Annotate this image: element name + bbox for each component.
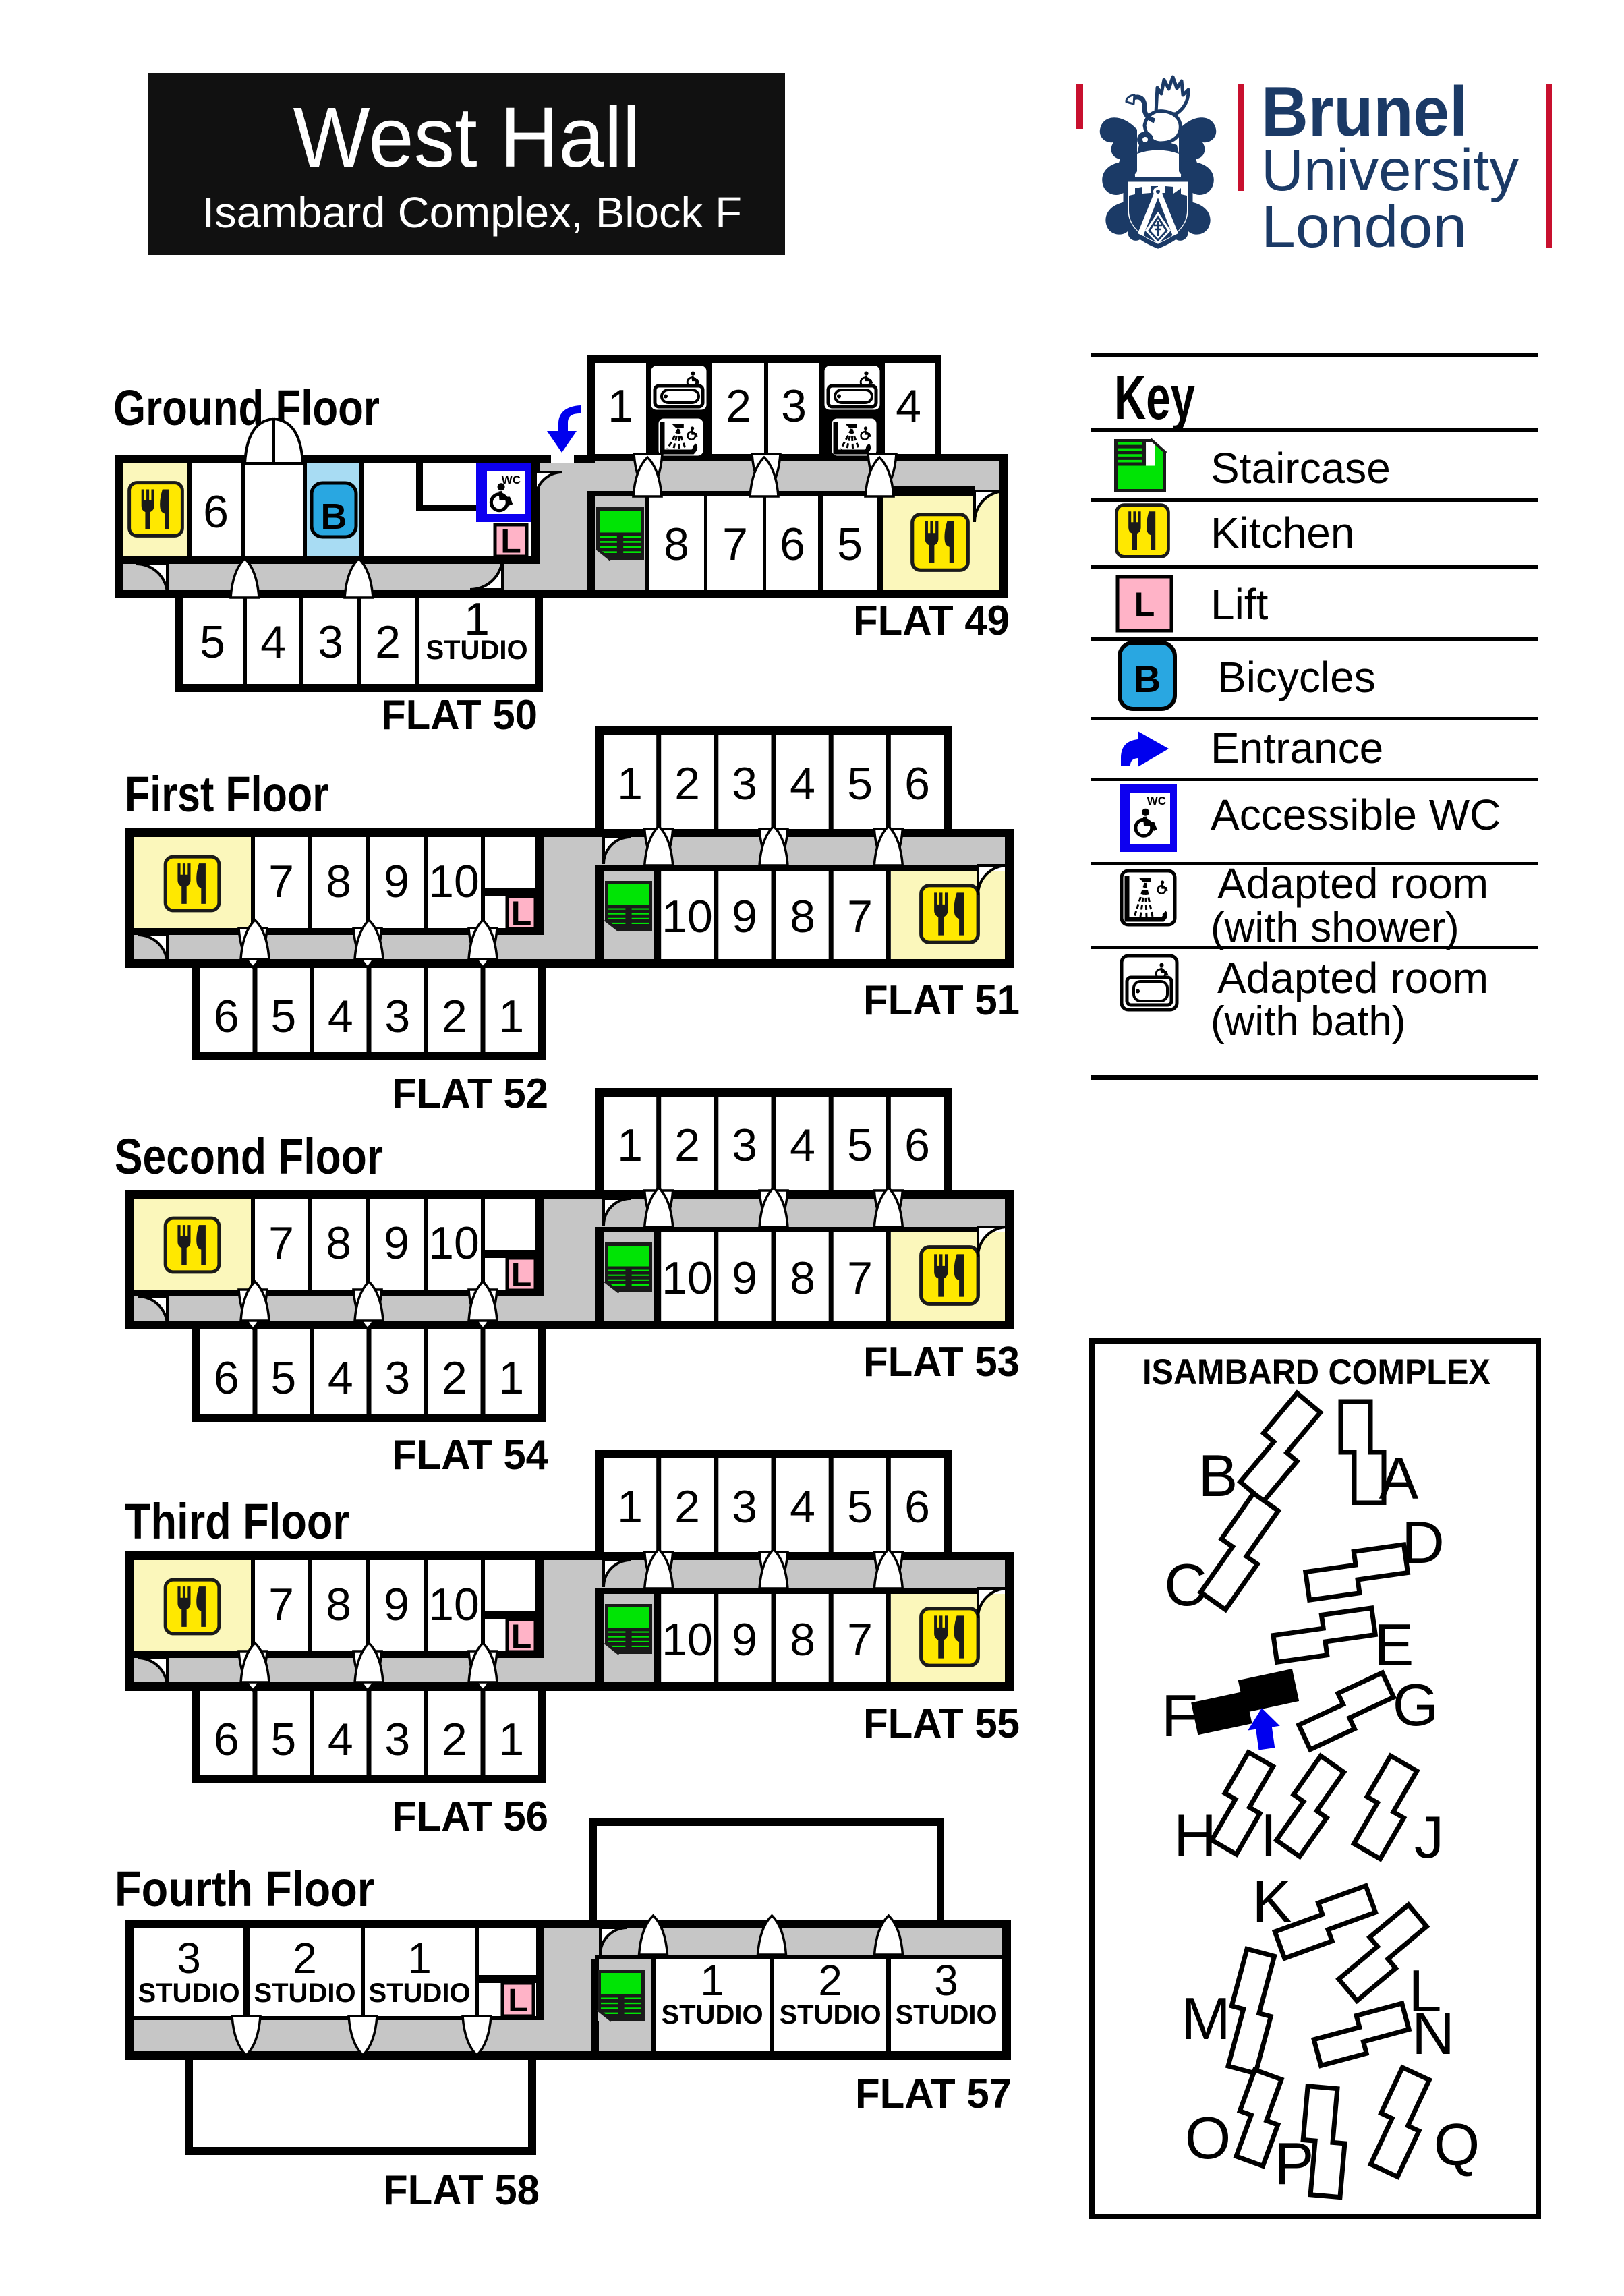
svg-text:5: 5 bbox=[200, 616, 225, 668]
svg-text:K: K bbox=[1252, 1868, 1292, 1934]
svg-text:I: I bbox=[1260, 1802, 1277, 1868]
svg-text:London: London bbox=[1261, 194, 1467, 260]
svg-text:STUDIO: STUDIO bbox=[138, 1978, 239, 2008]
svg-text:2: 2 bbox=[818, 1956, 842, 2005]
svg-text:9: 9 bbox=[384, 1217, 409, 1269]
svg-text:FLAT 57: FLAT 57 bbox=[855, 2071, 1012, 2117]
svg-text:FLAT 50: FLAT 50 bbox=[381, 692, 538, 739]
svg-text:4: 4 bbox=[790, 758, 815, 809]
svg-text:2: 2 bbox=[375, 616, 401, 668]
svg-text:10: 10 bbox=[428, 856, 480, 907]
svg-text:Bicycles: Bicycles bbox=[1217, 653, 1376, 701]
svg-text:D: D bbox=[1401, 1509, 1445, 1576]
svg-text:3: 3 bbox=[177, 1934, 201, 1982]
svg-text:4: 4 bbox=[790, 1120, 815, 1171]
svg-text:7: 7 bbox=[268, 856, 294, 907]
svg-text:7: 7 bbox=[847, 891, 873, 942]
svg-text:2: 2 bbox=[674, 758, 700, 809]
svg-text:7: 7 bbox=[268, 1217, 294, 1269]
svg-text:3: 3 bbox=[732, 758, 757, 809]
svg-text:C: C bbox=[1164, 1551, 1207, 1618]
svg-text:FLAT 56: FLAT 56 bbox=[392, 1793, 548, 1840]
svg-text:L: L bbox=[511, 1617, 532, 1655]
svg-text:10: 10 bbox=[428, 1579, 480, 1630]
svg-text:B: B bbox=[321, 496, 347, 537]
svg-text:G: G bbox=[1393, 1671, 1439, 1738]
svg-text:FLAT 53: FLAT 53 bbox=[863, 1339, 1020, 1385]
svg-text:5: 5 bbox=[270, 1352, 296, 1404]
svg-text:3: 3 bbox=[781, 380, 807, 432]
svg-text:STUDIO: STUDIO bbox=[368, 1978, 470, 2008]
svg-text:2: 2 bbox=[293, 1934, 317, 1982]
svg-text:Kitchen: Kitchen bbox=[1211, 509, 1354, 557]
svg-text:Ground Floor: Ground Floor bbox=[113, 380, 380, 436]
svg-text:4: 4 bbox=[790, 1481, 815, 1532]
svg-text:6: 6 bbox=[214, 1352, 239, 1404]
svg-text:J: J bbox=[1414, 1804, 1444, 1870]
svg-text:University: University bbox=[1261, 138, 1519, 203]
svg-text:Adapted room: Adapted room bbox=[1217, 954, 1488, 1002]
svg-text:1: 1 bbox=[617, 1481, 643, 1532]
svg-text:8: 8 bbox=[326, 856, 351, 907]
svg-text:8: 8 bbox=[326, 1217, 351, 1269]
svg-text:L: L bbox=[1134, 585, 1155, 623]
svg-text:N: N bbox=[1412, 2000, 1455, 2067]
svg-text:8: 8 bbox=[790, 1253, 815, 1304]
svg-text:FLAT 52: FLAT 52 bbox=[392, 1070, 548, 1117]
svg-text:3: 3 bbox=[732, 1120, 757, 1171]
svg-text:(with shower): (with shower) bbox=[1211, 905, 1459, 951]
svg-text:Third Floor: Third Floor bbox=[125, 1493, 349, 1549]
svg-text:L: L bbox=[511, 894, 532, 932]
svg-text:1: 1 bbox=[608, 380, 633, 432]
svg-text:1: 1 bbox=[700, 1956, 724, 2005]
svg-text:9: 9 bbox=[732, 891, 757, 942]
svg-text:O: O bbox=[1185, 2104, 1231, 2171]
svg-text:5: 5 bbox=[847, 1120, 873, 1171]
svg-text:2: 2 bbox=[674, 1120, 700, 1171]
svg-text:5: 5 bbox=[847, 758, 873, 809]
svg-text:Accessible WC: Accessible WC bbox=[1211, 791, 1501, 839]
svg-text:Key: Key bbox=[1114, 364, 1195, 432]
svg-text:L: L bbox=[511, 1256, 532, 1294]
svg-text:6: 6 bbox=[904, 1120, 930, 1171]
svg-text:9: 9 bbox=[384, 856, 409, 907]
svg-text:FLAT 51: FLAT 51 bbox=[863, 977, 1020, 1024]
svg-text:2: 2 bbox=[442, 1352, 467, 1404]
svg-text:STUDIO: STUDIO bbox=[895, 2000, 997, 2030]
svg-text:6: 6 bbox=[214, 991, 239, 1042]
svg-text:8: 8 bbox=[664, 519, 689, 570]
svg-text:FLAT 58: FLAT 58 bbox=[383, 2167, 540, 2214]
svg-text:ISAMBARD COMPLEX: ISAMBARD COMPLEX bbox=[1142, 1352, 1490, 1392]
svg-text:1: 1 bbox=[407, 1934, 432, 1982]
svg-text:8: 8 bbox=[790, 1614, 815, 1665]
svg-text:10: 10 bbox=[662, 1253, 713, 1304]
svg-text:5: 5 bbox=[837, 519, 863, 570]
svg-text:Isambard Complex, Block F: Isambard Complex, Block F bbox=[202, 188, 742, 237]
svg-text:M: M bbox=[1181, 1985, 1230, 2052]
svg-text:9: 9 bbox=[732, 1614, 757, 1665]
svg-text:6: 6 bbox=[904, 758, 930, 809]
svg-text:8: 8 bbox=[326, 1579, 351, 1630]
svg-text:P: P bbox=[1275, 2130, 1314, 2197]
svg-text:7: 7 bbox=[268, 1579, 294, 1630]
svg-text:B: B bbox=[1134, 658, 1161, 700]
svg-text:10: 10 bbox=[662, 1614, 713, 1665]
svg-text:3: 3 bbox=[732, 1481, 757, 1532]
svg-text:2: 2 bbox=[726, 380, 751, 432]
svg-text:7: 7 bbox=[847, 1253, 873, 1304]
svg-text:3: 3 bbox=[384, 1714, 410, 1765]
svg-text:STUDIO: STUDIO bbox=[426, 635, 527, 665]
svg-text:3: 3 bbox=[384, 991, 410, 1042]
svg-text:B: B bbox=[1198, 1442, 1238, 1509]
svg-text:2: 2 bbox=[442, 991, 467, 1042]
svg-text:L: L bbox=[500, 523, 521, 561]
svg-text:4: 4 bbox=[328, 1352, 353, 1404]
svg-text:4: 4 bbox=[328, 1714, 353, 1765]
svg-text:Fourth Floor: Fourth Floor bbox=[115, 1861, 374, 1917]
svg-text:West Hall: West Hall bbox=[293, 90, 641, 185]
svg-text:1: 1 bbox=[498, 991, 524, 1042]
svg-text:2: 2 bbox=[674, 1481, 700, 1532]
svg-text:Q: Q bbox=[1434, 2111, 1480, 2178]
svg-text:E: E bbox=[1374, 1611, 1414, 1678]
svg-text:(with bath): (with bath) bbox=[1211, 998, 1405, 1045]
svg-text:Lift: Lift bbox=[1211, 580, 1269, 629]
svg-text:10: 10 bbox=[662, 891, 713, 942]
svg-text:Second Floor: Second Floor bbox=[115, 1128, 383, 1184]
svg-text:Staircase: Staircase bbox=[1211, 444, 1391, 492]
svg-text:Adapted room: Adapted room bbox=[1217, 859, 1488, 908]
svg-text:1: 1 bbox=[617, 1120, 643, 1171]
svg-text:STUDIO: STUDIO bbox=[254, 1978, 355, 2008]
svg-text:4: 4 bbox=[896, 380, 921, 432]
svg-text:H: H bbox=[1173, 1802, 1217, 1868]
svg-text:7: 7 bbox=[722, 519, 748, 570]
svg-text:7: 7 bbox=[847, 1614, 873, 1665]
svg-text:6: 6 bbox=[203, 486, 229, 538]
svg-text:9: 9 bbox=[732, 1253, 757, 1304]
svg-text:5: 5 bbox=[270, 991, 296, 1042]
svg-text:4: 4 bbox=[260, 616, 286, 668]
svg-text:3: 3 bbox=[934, 1956, 958, 2005]
svg-text:8: 8 bbox=[790, 891, 815, 942]
svg-text:10: 10 bbox=[428, 1217, 480, 1269]
svg-text:1: 1 bbox=[498, 1714, 524, 1765]
svg-text:WC: WC bbox=[1147, 795, 1166, 807]
svg-text:F: F bbox=[1161, 1682, 1198, 1749]
svg-text:2: 2 bbox=[442, 1714, 467, 1765]
svg-text:First Floor: First Floor bbox=[125, 766, 328, 822]
svg-text:9: 9 bbox=[384, 1579, 409, 1630]
svg-text:STUDIO: STUDIO bbox=[661, 2000, 763, 2030]
svg-text:Entrance: Entrance bbox=[1211, 724, 1383, 772]
svg-text:A: A bbox=[1379, 1445, 1419, 1512]
svg-text:FLAT 49: FLAT 49 bbox=[853, 598, 1010, 644]
svg-text:STUDIO: STUDIO bbox=[779, 2000, 881, 2030]
svg-text:FLAT 55: FLAT 55 bbox=[863, 1700, 1020, 1747]
svg-text:WC: WC bbox=[502, 473, 521, 486]
svg-text:1: 1 bbox=[498, 1352, 524, 1404]
svg-text:1: 1 bbox=[617, 758, 643, 809]
svg-text:5: 5 bbox=[270, 1714, 296, 1765]
svg-text:FLAT 54: FLAT 54 bbox=[392, 1432, 548, 1479]
svg-text:6: 6 bbox=[780, 519, 805, 570]
svg-text:L: L bbox=[508, 1983, 527, 2019]
svg-text:6: 6 bbox=[904, 1481, 930, 1532]
svg-text:3: 3 bbox=[384, 1352, 410, 1404]
svg-text:3: 3 bbox=[318, 616, 343, 668]
svg-text:4: 4 bbox=[328, 991, 353, 1042]
svg-text:5: 5 bbox=[847, 1481, 873, 1532]
svg-text:6: 6 bbox=[214, 1714, 239, 1765]
